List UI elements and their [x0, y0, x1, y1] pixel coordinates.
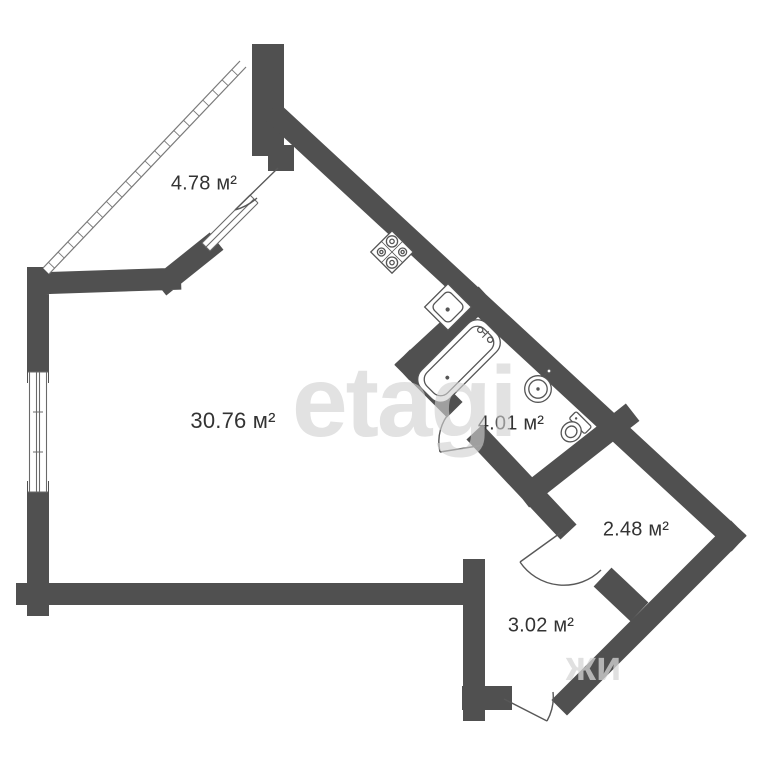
watermark-etagi: etagi — [292, 352, 515, 452]
room-label-closet: 2.48 м² — [603, 519, 669, 542]
room-label-hallway: 3.02 м² — [508, 615, 574, 638]
left-wall-window — [28, 372, 48, 492]
room-label-balcony: 4.78 м² — [171, 173, 237, 196]
room-label-living-kitchen: 30.76 м² — [190, 408, 275, 434]
floor-plan: 4.78 м² 30.76 м² 4.01 м² 2.48 м² 3.02 м²… — [0, 0, 768, 768]
watermark-fragment: жи — [566, 645, 622, 687]
